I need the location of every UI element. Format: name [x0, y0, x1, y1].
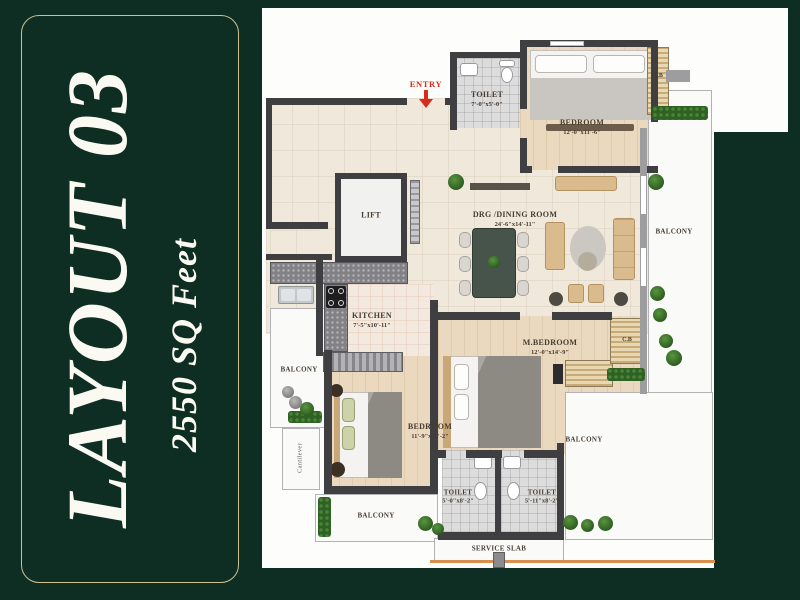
- room-dims: 24'-6"x14'-11": [473, 221, 557, 228]
- label-service-slab: SERVICE SLAB: [472, 544, 527, 553]
- plant: [653, 308, 667, 322]
- label-bedroom-2: BEDROOM 11'-9"x12'-2": [408, 422, 452, 440]
- plant: [648, 174, 664, 190]
- wall: [450, 52, 522, 58]
- master-bed-pillow: [454, 394, 469, 420]
- room-name: C.B: [622, 336, 632, 344]
- slab-block: [493, 552, 505, 568]
- plant: [598, 516, 613, 531]
- room-name: TOILET: [442, 489, 473, 498]
- room-name: BEDROOM: [560, 118, 604, 129]
- room-name: TOILET: [525, 489, 559, 498]
- bedroom2-blanket: [368, 392, 402, 478]
- poster-background: { "panel": { "title": "LAYOUT 03", "subt…: [0, 0, 800, 600]
- dining-chair: [517, 280, 529, 296]
- armchair: [545, 222, 565, 270]
- label-toilet-top: TOILET 7'-0"x5'-0": [471, 90, 503, 108]
- wall: [324, 486, 438, 494]
- slab-edge-line: [430, 560, 715, 563]
- label-cupboard-mid: C.B: [622, 336, 632, 344]
- label-balcony-bottom: BALCONY: [357, 511, 394, 520]
- plant: [650, 286, 665, 301]
- room-name: KITCHEN: [352, 311, 392, 322]
- bedroom2-pillow: [342, 398, 355, 422]
- round-table: [614, 292, 628, 306]
- label-toilet-bl: TOILET 5'-0"x8'-2": [442, 489, 473, 506]
- washbasin: [503, 456, 521, 469]
- wall: [316, 260, 323, 356]
- planter-pot: [289, 396, 302, 409]
- label-master-bedroom: M.BEDROOM 12'-0"x14'-9": [523, 338, 577, 356]
- label-balcony-right-lower: BALCONY: [565, 435, 602, 444]
- wall: [324, 350, 332, 492]
- bedside-pot: [330, 462, 345, 477]
- bedroom2-wardrobe: [323, 352, 403, 372]
- wc-bowl: [507, 482, 520, 500]
- room-dims: 11'-9"x12'-2": [408, 433, 452, 440]
- hedge: [607, 368, 645, 381]
- wall: [438, 532, 564, 540]
- dresser: [555, 176, 617, 191]
- label-cupboard-top: C.B: [653, 72, 663, 80]
- layout-subtitle: 2550 SQ Feet: [163, 238, 205, 452]
- wall: [450, 52, 457, 130]
- wall: [640, 128, 647, 320]
- room-dims: 12'-0"x11'-6": [560, 129, 604, 136]
- washbasin: [460, 63, 478, 76]
- label-cantilever: Cantilever: [297, 443, 306, 473]
- room-dims: 7'-0"x5'-0": [471, 101, 503, 108]
- side-table: [568, 284, 584, 303]
- plant: [432, 523, 444, 535]
- wall: [430, 300, 438, 356]
- room-name: LIFT: [361, 211, 381, 222]
- entry-arrow-head: [419, 99, 433, 108]
- dining-chair: [459, 280, 471, 296]
- bed-top-pillow-right: [593, 55, 645, 73]
- room-name: TOILET: [471, 90, 503, 101]
- window: [641, 248, 646, 286]
- room-balcony-right-lower: [565, 392, 713, 540]
- room-name: BALCONY: [357, 511, 394, 520]
- room-name: Cantilever: [297, 443, 306, 473]
- dining-chair: [459, 256, 471, 272]
- wall: [266, 98, 407, 105]
- side-table: [588, 284, 604, 303]
- label-kitchen: KITCHEN 7'-5"x10'-11": [352, 311, 392, 329]
- shaft: [410, 180, 420, 244]
- wall: [266, 98, 272, 228]
- wall: [552, 312, 612, 320]
- room-name: BALCONY: [655, 227, 692, 236]
- window: [550, 41, 584, 46]
- pouf: [578, 252, 597, 271]
- room-name: BEDROOM: [408, 422, 452, 433]
- wall: [434, 450, 446, 458]
- room-name: M.BEDROOM: [523, 338, 577, 349]
- bed-top-blanket: [530, 78, 651, 120]
- plant: [418, 516, 433, 531]
- wc-bowl: [474, 482, 487, 500]
- room-name: DRG /DINING ROOM: [473, 210, 557, 221]
- floor-plan: ENTRY TOILET 7'-0"x5'-0" BEDROOM 12'-0"x…: [262, 0, 800, 600]
- room-name: C.B: [653, 72, 663, 80]
- room-dims: 7'-5"x10'-11": [352, 322, 392, 329]
- stove: [326, 286, 346, 308]
- wall: [520, 47, 527, 109]
- layout-title: LAYOUT 03: [47, 68, 147, 528]
- plant: [659, 334, 673, 348]
- dining-chair: [517, 256, 529, 272]
- master-bed-pillow: [454, 364, 469, 390]
- table-centerpiece-plant: [488, 256, 500, 268]
- label-drg-dining: DRG /DINING ROOM 24'-6"x14'-11": [473, 210, 557, 228]
- label-lift: LIFT: [361, 211, 381, 222]
- bed-top-pillow-left: [535, 55, 587, 73]
- window: [641, 176, 646, 214]
- label-balcony-right: BALCONY: [655, 227, 692, 236]
- hedge: [318, 497, 331, 537]
- room-dims: 12'-0"x14'-9": [523, 349, 577, 356]
- plant: [581, 519, 594, 532]
- wall: [520, 40, 658, 47]
- wall: [666, 70, 690, 82]
- room-dims: 5'-0"x8'-2": [442, 498, 473, 505]
- plant: [448, 174, 464, 190]
- wall: [520, 138, 527, 173]
- wall: [495, 450, 501, 534]
- label-balcony-left: BALCONY: [280, 365, 317, 374]
- master-bed-blanket: [478, 356, 541, 448]
- dining-chair: [459, 232, 471, 248]
- room-name: BALCONY: [280, 365, 317, 374]
- wall: [434, 312, 520, 320]
- plan-canvas-top-right: [714, 8, 788, 132]
- master-wardrobe: [565, 360, 613, 387]
- room-name: BALCONY: [565, 435, 602, 444]
- room-name: SERVICE SLAB: [472, 544, 527, 553]
- entry-label: ENTRY: [410, 79, 442, 89]
- label-bedroom-top: BEDROOM 12'-0"x11'-6": [560, 118, 604, 136]
- round-table: [549, 292, 563, 306]
- wall: [640, 318, 647, 394]
- sofa: [613, 218, 635, 280]
- plant: [666, 350, 682, 366]
- utility-sink: [278, 286, 314, 304]
- entry-text: ENTRY: [410, 79, 442, 89]
- kitchen-counter-top: [270, 262, 408, 284]
- label-toilet-br: TOILET 5'-11"x8'-2": [525, 489, 559, 506]
- entry-arrow: [424, 90, 428, 99]
- wall: [266, 222, 328, 229]
- plant: [300, 402, 314, 416]
- bedroom2-pillow: [342, 426, 355, 450]
- hedge: [652, 106, 708, 120]
- room-dims: 5'-11"x8'-2": [525, 498, 559, 505]
- tv-unit: [553, 364, 563, 384]
- console-table: [470, 183, 530, 190]
- dining-chair: [517, 232, 529, 248]
- wc-tank: [499, 60, 515, 67]
- plant: [563, 515, 578, 530]
- wc-bowl: [501, 67, 513, 83]
